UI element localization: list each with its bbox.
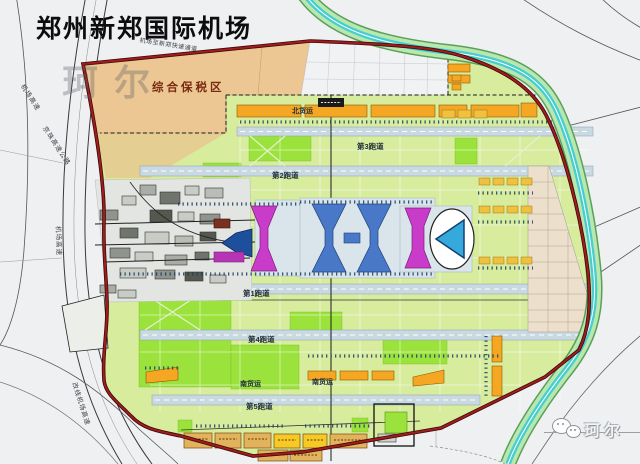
north-badge [318, 98, 344, 107]
runway-4-label: 第4跑道 [248, 336, 275, 344]
road-label-airport-expressway-w: 机场高速 [54, 226, 62, 256]
concourse-connector [344, 233, 360, 243]
bonded-zone-label: 综合保税区 [152, 79, 225, 95]
airport-master-plan-map: 郑州新郑国际机场 珂尔 综合保税区 第3跑道 第2跑道 第1跑道 第4跑道 第5… [0, 0, 640, 464]
south-cargo-label-west: 南货运 [240, 381, 261, 388]
watermark-bottom-right: 珂尔 [544, 416, 640, 450]
wechat-icon-small [566, 425, 581, 438]
watermark-center: 珂尔 [62, 54, 166, 106]
runway-3-label: 第3跑道 [357, 143, 384, 151]
runway-5-label: 第5跑道 [246, 403, 273, 411]
south-cargo-label-east: 南货运 [312, 379, 333, 386]
watermark-bottom-right-text: 珂尔 [584, 417, 624, 441]
terminal-magenta-bar [214, 252, 244, 262]
maroon-building [214, 219, 230, 228]
runway-2-label: 第2跑道 [272, 172, 299, 180]
runway-1-label: 第1跑道 [243, 290, 270, 298]
gtc-parcel [62, 295, 108, 352]
north-cargo-label: 北货运 [292, 108, 313, 115]
